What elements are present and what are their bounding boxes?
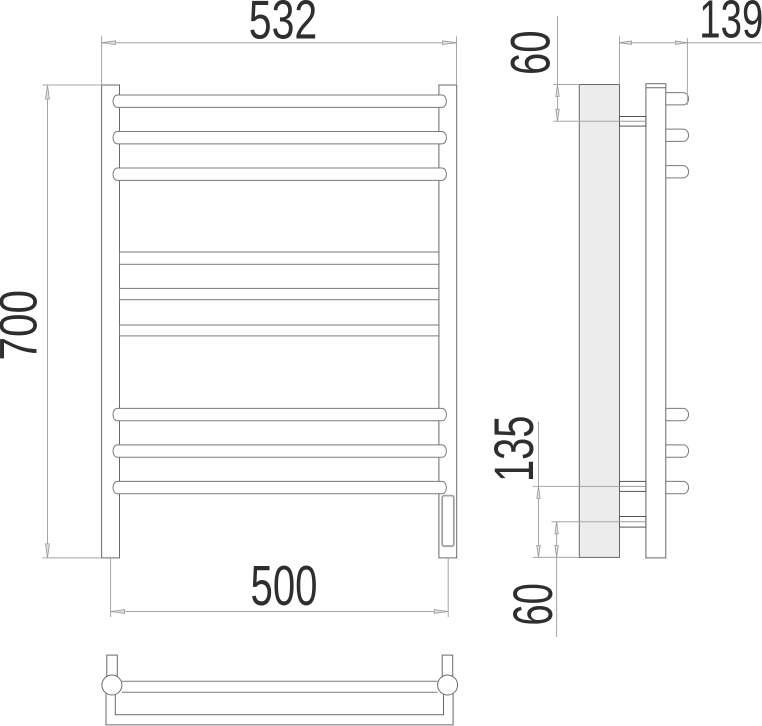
svg-text:700: 700 [0, 290, 49, 361]
svg-text:139: 139 [699, 0, 762, 50]
svg-text:532: 532 [249, 0, 318, 51]
svg-text:500: 500 [251, 554, 318, 617]
svg-text:60: 60 [501, 583, 564, 626]
svg-text:135: 135 [482, 416, 545, 483]
svg-text:60: 60 [498, 30, 561, 74]
